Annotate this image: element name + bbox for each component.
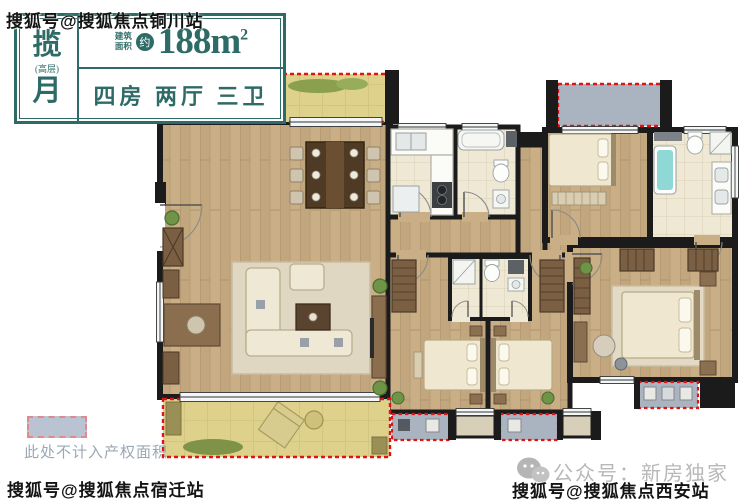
- rooms-summary: 四房 两厅 三卫: [79, 69, 283, 121]
- window-sill: [562, 415, 592, 437]
- nightstand: [700, 272, 716, 286]
- bookshelf: [163, 270, 179, 298]
- pillow: [467, 344, 477, 361]
- plant-icon: [373, 381, 387, 395]
- pillow: [499, 368, 509, 385]
- nightstand: [470, 326, 482, 336]
- plant-icon: [392, 392, 404, 404]
- window-bedml-bottom: [456, 409, 494, 416]
- tv: [370, 318, 374, 358]
- nightstand: [494, 326, 506, 336]
- balcony-planter: [166, 402, 181, 435]
- legend-swatch: [27, 416, 87, 438]
- washer: [506, 131, 517, 147]
- pillow: [598, 139, 608, 157]
- watermark-top-left: 搜狐号@搜狐焦点铜川站: [6, 7, 204, 32]
- window-living-side: [157, 282, 164, 342]
- ac-unit: [680, 387, 692, 400]
- toilet-icon: [687, 132, 703, 154]
- plant-icon: [165, 211, 179, 225]
- balcony-shrub: [183, 439, 243, 455]
- bench: [414, 352, 422, 378]
- desk-chair: [187, 316, 205, 334]
- ac-unit: [644, 387, 656, 400]
- bathtub-water: [657, 150, 673, 190]
- watermark-bottom-right: 搜狐号@搜狐焦点西安站: [512, 477, 710, 502]
- area-label: 建筑 面积: [115, 32, 132, 52]
- nightstand: [700, 361, 716, 375]
- plant-icon: [580, 262, 592, 274]
- window-bedroom-top-right: [562, 127, 638, 134]
- ac-unit: [508, 419, 521, 432]
- area-label-line2: 面积: [115, 42, 132, 52]
- unit-name-note: (高层): [35, 62, 59, 75]
- pillow: [499, 344, 509, 361]
- nightstand: [494, 394, 506, 404]
- legend-note: 此处不计入产权面积: [24, 441, 168, 462]
- pillow: [467, 368, 477, 385]
- headboard: [611, 134, 616, 186]
- wardrobe: [620, 249, 654, 271]
- toilet-icon: [485, 260, 500, 282]
- pillow: [679, 298, 691, 322]
- wardrobe: [688, 249, 718, 271]
- pillow: [679, 328, 691, 352]
- window-master-bath-side: [732, 146, 739, 198]
- headboard: [480, 338, 485, 392]
- headboard: [694, 290, 700, 360]
- floorplan-page: 揽 (高层) 月 建筑 面积 约 188m2 四房 两厅 三卫 此处不计入产权面…: [0, 0, 740, 504]
- vanity-shelf: [654, 132, 682, 141]
- ac-unit: [662, 387, 674, 400]
- ac-unit: [426, 419, 439, 432]
- window-master-bottom: [600, 377, 634, 384]
- shower: [453, 260, 475, 284]
- equipment-platform-top: [558, 84, 664, 126]
- area-exponent: 2: [240, 27, 247, 44]
- washer: [508, 260, 524, 274]
- corridor: [518, 145, 545, 255]
- headboard: [491, 338, 496, 392]
- tv-cabinet: [372, 296, 386, 378]
- dresser: [574, 322, 587, 362]
- table-decor: [309, 313, 317, 321]
- armchair: [593, 335, 615, 357]
- balcony-shrub: [336, 78, 368, 90]
- window-bedmr-bottom: [563, 409, 591, 416]
- unit-name-top: 揽: [32, 31, 61, 60]
- window-sill: [455, 415, 495, 437]
- washbasin: [715, 168, 728, 182]
- pillow: [598, 162, 608, 180]
- bookshelf: [163, 352, 179, 384]
- plant-icon: [542, 392, 554, 404]
- unit-name-bottom: 月: [32, 77, 61, 106]
- washbasin: [715, 190, 728, 204]
- shower: [710, 132, 731, 154]
- watermark-bottom-left: 搜狐号@搜狐焦点宿迁站: [7, 476, 205, 501]
- bedroom-tr-furniture: [549, 134, 616, 205]
- table-runner: [326, 142, 344, 208]
- plant-icon: [373, 279, 387, 293]
- fridge: [393, 186, 419, 212]
- approx-badge: 约: [136, 33, 154, 51]
- toilet-icon: [493, 160, 509, 182]
- balcony-table: [305, 411, 323, 429]
- armchair: [290, 264, 324, 290]
- window-dining-balcony: [290, 118, 382, 127]
- balcony-planter: [372, 437, 387, 454]
- window-living-balcony: [180, 393, 380, 402]
- nightstand: [470, 394, 482, 404]
- ac-unit: [398, 419, 410, 431]
- ottoman: [615, 358, 627, 370]
